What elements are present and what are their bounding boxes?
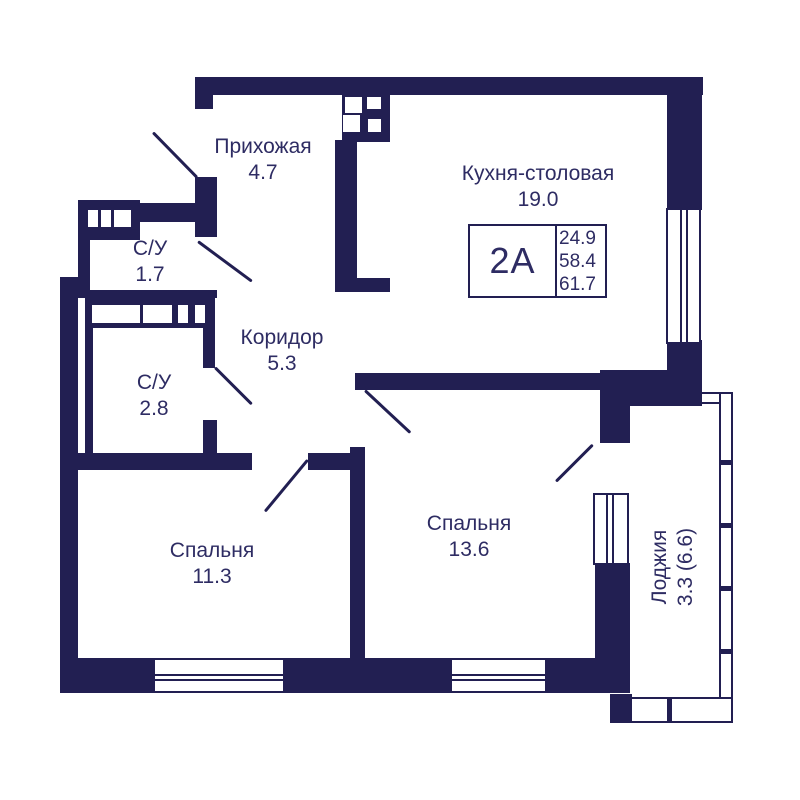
vent-cell <box>101 210 111 227</box>
loggia-corner-post <box>610 694 632 723</box>
wall-bedrooms-partition <box>350 447 365 658</box>
vent-cell <box>343 115 360 132</box>
vent-shaft-kitchen <box>342 93 390 142</box>
wall-exterior-left <box>60 277 78 693</box>
wall-kitchen-southeast-pier <box>600 406 630 443</box>
room-label-bath-large: С/У 2.8 <box>137 370 171 422</box>
window-mullion <box>452 674 545 676</box>
loggia-glazing-divider <box>721 523 731 528</box>
usable-area-value: 58.4 <box>559 250 605 273</box>
room-area: 11.3 <box>170 564 254 590</box>
vent-shaft-bath-large <box>85 298 215 328</box>
loggia-glazing-divider <box>721 649 731 654</box>
wall-entry-jamb <box>195 95 213 109</box>
window-mullion <box>606 495 608 563</box>
room-area: 3.3 (6.6) <box>673 528 699 606</box>
wall-kitchen-bedroom-right <box>355 373 630 390</box>
room-name: Спальня <box>170 538 254 564</box>
room-name: Прихожая <box>214 134 311 160</box>
wall-bath-separator <box>78 290 217 298</box>
vent-cell <box>345 97 362 113</box>
wall-bedroom-right-east <box>595 563 630 658</box>
wall-bath-small-north <box>140 203 195 222</box>
room-name: Спальня <box>427 511 511 537</box>
loggia-glazing-right <box>719 392 733 723</box>
room-label-corridor: Коридор 5.3 <box>241 325 324 377</box>
vent-cell <box>88 210 98 227</box>
wall-hallway-west <box>195 177 217 237</box>
wall-kitchen-west <box>335 140 357 278</box>
room-label-bedroom-left: Спальня 11.3 <box>170 538 254 590</box>
window-mullion <box>612 495 614 563</box>
room-name: Кухня-столовая <box>462 161 614 187</box>
window-mullion <box>155 674 283 676</box>
window-bedroom-right-loggia <box>593 493 629 565</box>
vent-cell <box>114 210 131 227</box>
door-swing-entry <box>152 131 198 178</box>
room-area: 1.7 <box>133 262 167 288</box>
room-area: 2.8 <box>137 396 171 422</box>
wall-exterior-top <box>195 77 703 95</box>
room-label-loggia: Лоджия 3.3 (6.6) <box>647 528 699 606</box>
wall-kitchen-west-flange <box>335 278 390 292</box>
vent-cell <box>195 305 205 323</box>
vent-cell <box>92 305 140 323</box>
window-bedroom-left <box>153 658 285 693</box>
window-mullion <box>686 210 688 342</box>
wall-exterior-right-upper <box>667 95 702 210</box>
vent-cell <box>143 305 172 323</box>
loggia-glazing-bottom <box>630 697 733 723</box>
wall-bath-large-west <box>85 328 93 453</box>
room-name: С/У <box>133 236 167 262</box>
wall-bedroom-left-north-a <box>60 453 252 470</box>
vent-shaft-bath-small <box>78 200 140 240</box>
vent-cell <box>178 305 188 323</box>
room-name: Коридор <box>241 325 324 351</box>
door-swing-loggia <box>555 444 594 483</box>
wall-bath-large-east-upper <box>203 325 215 368</box>
apartment-areas: 24.9 58.4 61.7 <box>555 226 605 296</box>
wall-exterior-right-lower <box>667 340 702 372</box>
room-label-bedroom-right: Спальня 13.6 <box>427 511 511 563</box>
floor-plan: Прихожая 4.7 С/У 1.7 Коридор 5.3 С/У 2.8… <box>0 0 800 800</box>
loggia-glazing-divider <box>667 699 672 721</box>
window-mullion <box>155 679 283 681</box>
vent-cell <box>368 119 381 132</box>
living-area-value: 24.9 <box>559 227 605 250</box>
room-name: Лоджия <box>647 528 673 606</box>
loggia-glazing-divider <box>721 460 731 465</box>
vent-cell <box>367 97 381 109</box>
total-area-value: 61.7 <box>559 273 605 296</box>
window-bedroom-right <box>450 658 547 693</box>
room-label-bath-small: С/У 1.7 <box>133 236 167 288</box>
room-name: С/У <box>137 370 171 396</box>
room-label-hallway: Прихожая 4.7 <box>214 134 311 186</box>
room-area: 19.0 <box>462 187 614 213</box>
window-mullion <box>680 210 682 342</box>
window-mullion <box>452 679 545 681</box>
wall-bath-large-east-stub <box>203 420 217 453</box>
door-swing-bedroom-right <box>364 389 411 433</box>
loggia-glazing-divider <box>721 586 731 591</box>
door-swing-bath-small <box>197 240 253 282</box>
window-kitchen <box>666 208 701 344</box>
room-area: 4.7 <box>214 160 311 186</box>
apartment-layout-code: 2А <box>470 226 555 296</box>
room-area: 13.6 <box>427 537 511 563</box>
room-label-kitchen: Кухня-столовая 19.0 <box>462 161 614 213</box>
room-area: 5.3 <box>241 351 324 377</box>
apartment-info-box: 2А 24.9 58.4 61.7 <box>468 224 607 298</box>
door-swing-bedroom-left <box>264 459 309 513</box>
